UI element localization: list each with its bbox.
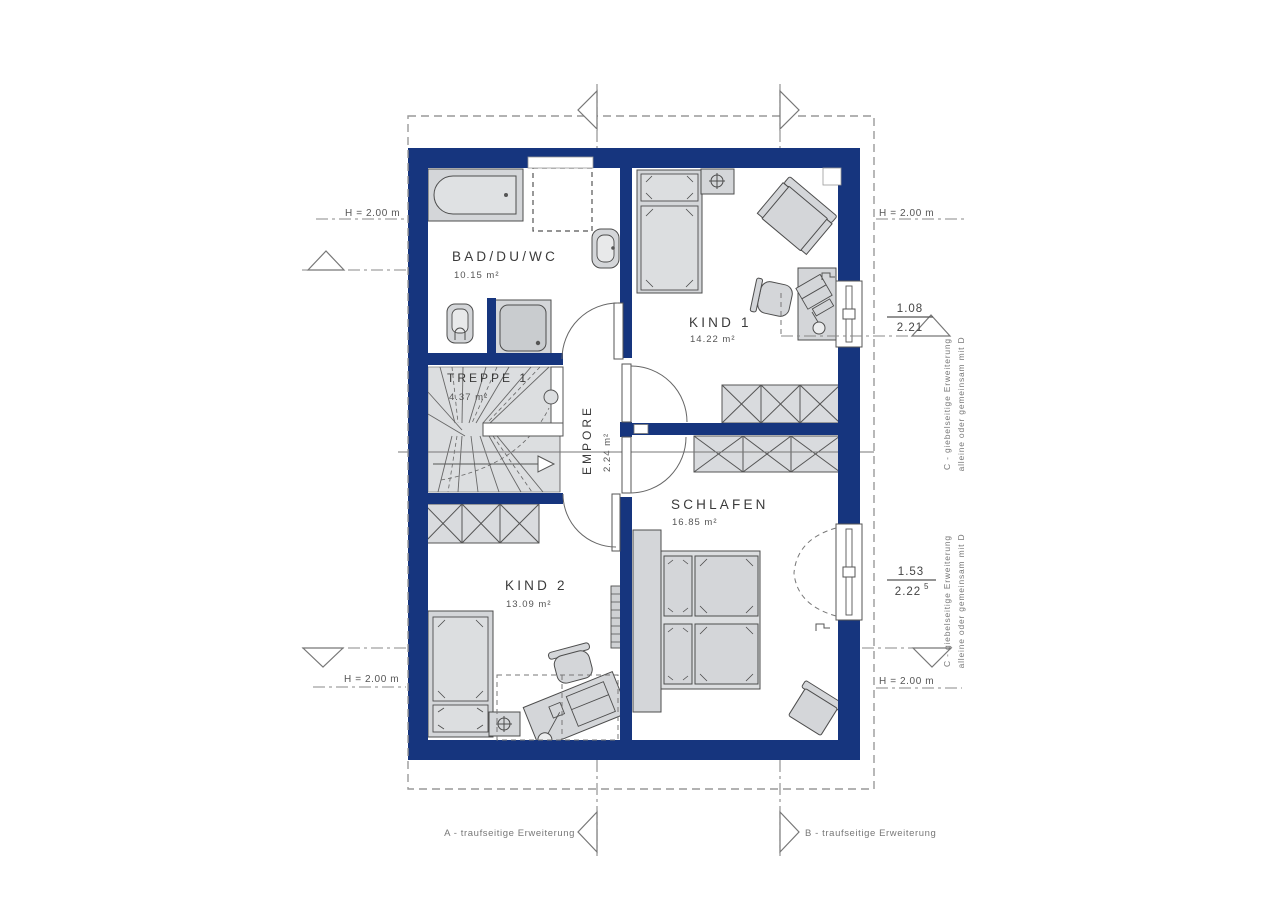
wall-niche-kind1: [823, 168, 841, 185]
washbasin: [592, 229, 619, 268]
nightstand-kind2: [489, 712, 520, 736]
wardrobe-schlafen: [694, 436, 840, 472]
bathtub: [428, 169, 523, 221]
window-dim-schlafen-height-sup: 5: [924, 582, 929, 591]
room-area-schlafen: 16.85 m²: [672, 517, 718, 528]
height-marker-left-bottom: H = 2.00 m: [344, 674, 399, 685]
wall-stairs-south: [408, 493, 563, 504]
triangle-marker-top-a: [578, 91, 597, 129]
window-dim-schlafen-height: 2.22: [895, 586, 921, 598]
door-kind2: [563, 494, 620, 551]
wall-niche-bad: [528, 157, 593, 168]
door-schlafen: [622, 437, 686, 493]
extension-label-a: A - traufseitige Erweiterung: [444, 828, 575, 839]
triangle-marker-bottom-a: [578, 812, 597, 852]
triangle-marker-bottom-b: [780, 812, 799, 852]
wall-empore-schlafen: [620, 497, 632, 740]
stair-railing-bar: [483, 423, 563, 436]
room-label-treppe: TREPPE 1: [447, 371, 529, 385]
room-label-kind1: KIND 1: [689, 315, 752, 330]
room-area-bad: 10.15 m²: [454, 270, 500, 281]
wall-kind1-schlafen: [632, 423, 860, 435]
extension-label-c1-line1: C - giebelseitige Erweiterung: [942, 338, 952, 470]
window-dim-kind1-width: 1.08: [897, 303, 923, 315]
roof-slope-dashed-area: [533, 168, 592, 231]
desk-kind2: [523, 672, 629, 750]
wall-top: [408, 148, 860, 168]
door-bad: [562, 303, 623, 359]
toilet: [447, 304, 473, 343]
extension-label-c1-line2: alleine oder gemeinsam mit D: [956, 337, 966, 472]
wall-wc-stub: [487, 298, 496, 353]
radiator-kind2: [611, 586, 621, 648]
armchair-kind1: [757, 176, 838, 255]
desk-kind1: [796, 268, 837, 340]
triangle-marker-left-top: [308, 251, 344, 270]
door-kind1: [622, 364, 687, 422]
room-area-kind1: 14.22 m²: [690, 334, 736, 345]
room-area-empore: 2.24 m²: [602, 433, 613, 472]
extension-label-c2-line2: alleine oder gemeinsam mit D: [956, 534, 966, 669]
triangle-marker-top-b: [780, 91, 799, 129]
window-schlafen: [836, 524, 862, 620]
room-area-kind2: 13.09 m²: [506, 599, 552, 610]
height-marker-left-top: H = 2.00 m: [345, 208, 400, 219]
wall-bad-south: [408, 353, 563, 365]
hook-symbol: [816, 624, 830, 631]
bed-kind1: [637, 170, 702, 293]
wall-right: [838, 148, 860, 760]
wardrobe-kind1: [722, 385, 840, 423]
wall-left: [408, 148, 428, 760]
shower: [495, 300, 551, 356]
chair-kind1: [750, 278, 794, 319]
extension-label-b: B - traufseitige Erweiterung: [805, 828, 936, 839]
window-dim-kind1-height: 2.21: [897, 322, 923, 334]
floor-plan-svg: BAD/DU/WC 10.15 m² KIND 1 14.22 m² TREPP…: [0, 0, 1280, 905]
triangle-marker-left-bottom: [303, 648, 343, 667]
bed-kind2: [428, 611, 493, 737]
stair-walkline-start: [544, 390, 558, 404]
wardrobe-kind2: [424, 504, 539, 543]
height-marker-right-bottom: H = 2.00 m: [879, 676, 934, 687]
door-jamb: [634, 425, 648, 434]
staircase: [428, 367, 563, 492]
extension-label-c2-line1: C - giebelseitige Erweiterung: [942, 535, 952, 667]
floor-plan-canvas: BAD/DU/WC 10.15 m² KIND 1 14.22 m² TREPP…: [0, 0, 1280, 905]
window-swing-dashed: [794, 528, 836, 616]
window-kind1: [836, 281, 862, 347]
room-label-schlafen: SCHLAFEN: [671, 497, 769, 512]
room-label-bad: BAD/DU/WC: [452, 249, 558, 264]
bed-schlafen: [633, 530, 760, 712]
window-dim-schlafen-width: 1.53: [898, 566, 924, 578]
armchair-schlafen: [785, 680, 845, 737]
wall-junction: [620, 422, 632, 437]
height-marker-right-top: H = 2.00 m: [879, 208, 934, 219]
room-label-empore: EMPORE: [580, 405, 594, 475]
nightstand-kind1: [701, 169, 734, 194]
room-label-kind2: KIND 2: [505, 578, 568, 593]
wall-bottom: [408, 740, 860, 760]
chair-kind2: [548, 642, 597, 686]
room-area-treppe: 4.37 m²: [449, 392, 488, 403]
